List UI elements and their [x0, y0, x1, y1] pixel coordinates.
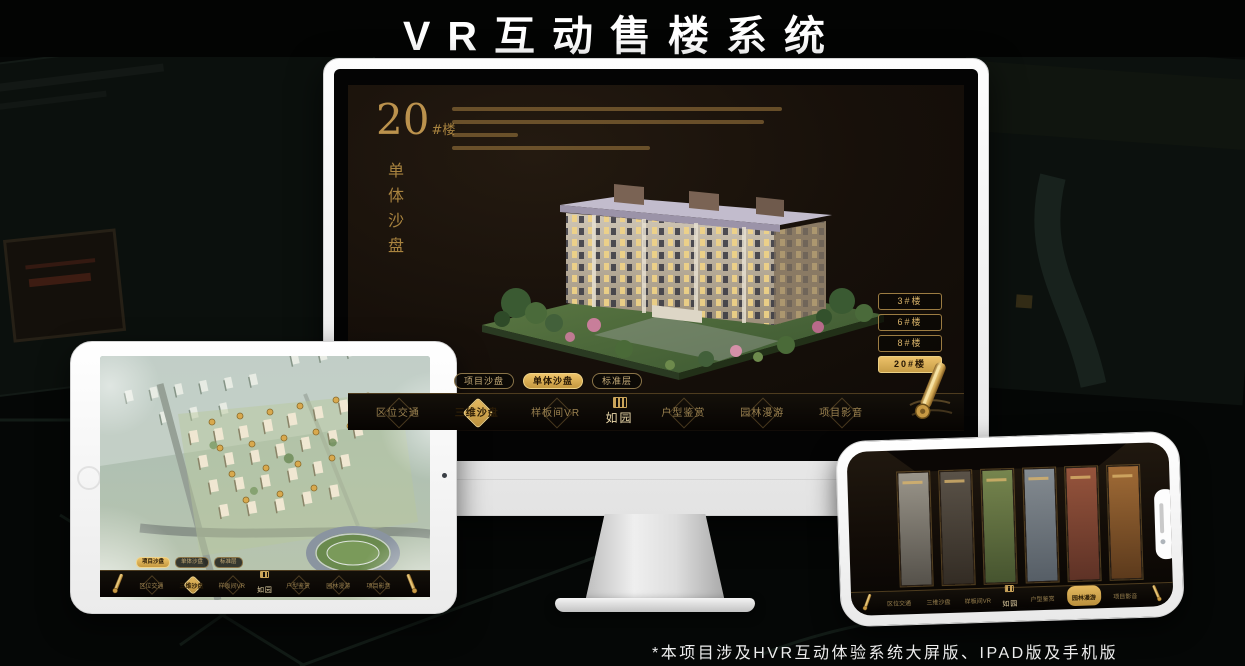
tablet-device: 项目沙盘 单体沙盘 标准层 区位交通 三维沙盘 样板间VR 如园 户型鉴赏 园林…	[70, 341, 457, 614]
building-model-render	[474, 153, 894, 385]
tablet-camera-icon	[442, 473, 447, 478]
nav-item-project-media[interactable]: 项目影音	[364, 575, 394, 593]
floor-button-8[interactable]: 8#楼	[878, 335, 942, 352]
panel-caption	[1112, 474, 1132, 478]
subtab-project-sandbox[interactable]: 项目沙盘	[454, 373, 514, 389]
subtab-single-sandbox[interactable]: 单体沙盘	[523, 373, 583, 389]
gallery-panel-warm-interior[interactable]	[1107, 465, 1143, 580]
nav-item-floorplans[interactable]: 户型鉴赏	[283, 575, 313, 593]
panel-caption	[1028, 477, 1048, 481]
monitor-subtabs: 项目沙盘 单体沙盘 标准层	[454, 373, 642, 389]
page-title: VR互动售楼系统	[0, 2, 1245, 62]
brand-logo[interactable]: 如园	[606, 397, 634, 427]
nav-item-floorplans[interactable]: 户型鉴赏	[1027, 588, 1058, 607]
scroll-ornament-icon[interactable]	[404, 572, 420, 596]
monitor-stand-base	[555, 598, 755, 612]
brand-logo[interactable]: 如园	[257, 571, 273, 597]
nav-item-project-media[interactable]: 项目影音	[1110, 585, 1141, 604]
nav-item-floorplans[interactable]: 户型鉴赏	[654, 403, 712, 421]
panel-caption	[1070, 475, 1090, 479]
scroll-ornament-icon[interactable]	[908, 357, 954, 427]
nav-item-model-room-vr[interactable]: 样板间VR	[962, 590, 993, 609]
nav-item-transport[interactable]: 区位交通	[884, 592, 915, 611]
phone-screen: 区位交通 三维沙盘 样板间VR 如园 户型鉴赏 园林漫游 项目影音	[847, 442, 1174, 616]
stage: VR互动售楼系统 20#楼 单体沙盘	[0, 0, 1245, 666]
nav-item-project-media[interactable]: 项目影音	[812, 403, 870, 421]
monitor-bezel: 20#楼 单体沙盘	[334, 69, 978, 461]
subtab-project-sandbox[interactable]: 项目沙盘	[136, 557, 170, 568]
footnote-text: *本项目涉及HVR互动体验系统大屏版、IPAD版及手机版	[652, 639, 1118, 663]
panel-caption	[902, 481, 922, 485]
brand-logo[interactable]: 如园	[1002, 585, 1019, 611]
scroll-ornament-icon[interactable]	[1149, 583, 1164, 603]
phone-nav-bar: 区位交通 三维沙盘 样板间VR 如园 户型鉴赏 园林漫游 项目影音	[851, 582, 1174, 613]
panel-caption	[944, 479, 964, 483]
description-text-lines	[452, 107, 782, 159]
gallery-panel-garden[interactable]	[981, 469, 1017, 584]
nav-item-transport[interactable]: 区位交通	[136, 575, 166, 593]
floor-button-6[interactable]: 6#楼	[878, 314, 942, 331]
gallery-panel-building[interactable]	[1023, 468, 1059, 583]
seal-icon	[1005, 585, 1014, 592]
gallery-panel-autumn[interactable]	[1065, 466, 1101, 581]
tablet-home-button[interactable]	[77, 466, 101, 490]
nav-item-transport[interactable]: 区位交通	[369, 403, 427, 421]
seal-icon	[260, 571, 269, 578]
scroll-gallery	[897, 465, 1142, 587]
monitor-stand-neck	[585, 514, 725, 602]
headline-vertical-label: 单体沙盘	[382, 162, 406, 282]
phone-speaker-icon	[1159, 503, 1164, 533]
nav-item-3d-sandbox[interactable]: 三维沙盘	[177, 575, 207, 593]
subtab-single-sandbox[interactable]: 单体沙盘	[175, 557, 209, 568]
subtab-standard-floor[interactable]: 标准层	[592, 373, 642, 389]
scroll-ornament-icon[interactable]	[110, 572, 126, 596]
building-number: 20	[376, 95, 429, 144]
nav-item-garden-roam[interactable]: 园林漫游	[1067, 585, 1102, 606]
building-headline: 20#楼 单体沙盘	[376, 99, 455, 282]
floor-button-3[interactable]: 3#楼	[878, 293, 942, 310]
nav-item-model-room-vr[interactable]: 样板间VR	[527, 403, 585, 421]
gallery-panel-courtyard[interactable]	[897, 472, 933, 587]
nav-item-3d-sandbox[interactable]: 三维沙盘	[448, 403, 506, 421]
tablet-subtabs: 项目沙盘 单体沙盘 标准层	[136, 557, 243, 568]
subtab-standard-floor[interactable]: 标准层	[214, 557, 243, 568]
scroll-ornament-icon[interactable]	[860, 592, 875, 612]
nav-item-3d-sandbox[interactable]: 三维沙盘	[923, 591, 954, 610]
monitor-nav-bar: 区位交通 三维沙盘 样板间VR 如园 户型鉴赏 园林漫游 项目影音	[348, 393, 964, 430]
phone-camera-icon	[1160, 539, 1165, 544]
panel-caption	[986, 478, 1006, 482]
phone-device: 区位交通 三维沙盘 样板间VR 如园 户型鉴赏 园林漫游 项目影音	[835, 431, 1185, 628]
nav-item-garden-roam[interactable]: 园林漫游	[733, 403, 791, 421]
seal-icon	[613, 397, 627, 408]
nav-item-garden-roam[interactable]: 园林漫游	[323, 575, 353, 593]
nav-item-model-room-vr[interactable]: 样板间VR	[217, 575, 247, 593]
gallery-panel-interior-dark[interactable]	[939, 470, 975, 585]
phone-notch	[1154, 489, 1174, 560]
tablet-nav-bar: 区位交通 三维沙盘 样板间VR 如园 户型鉴赏 园林漫游 项目影音	[100, 570, 430, 597]
